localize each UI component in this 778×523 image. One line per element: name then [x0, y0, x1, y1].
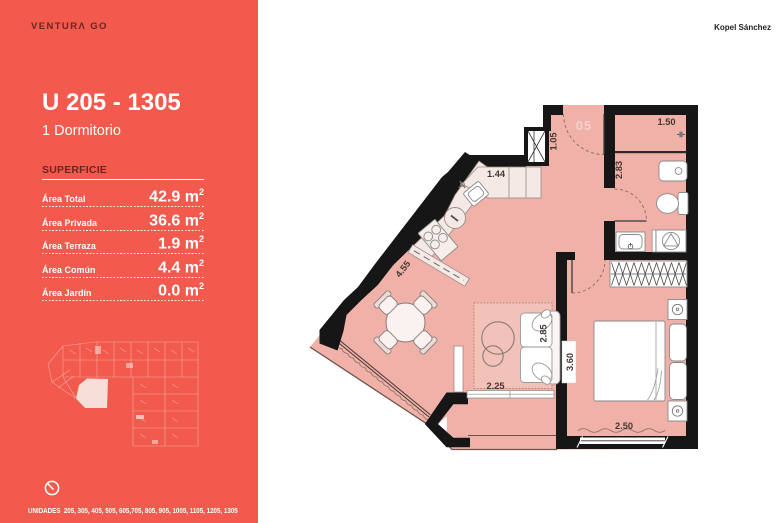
svg-text:1.44: 1.44: [487, 169, 506, 179]
svg-text:1.05: 1.05: [549, 132, 559, 150]
svg-text:3.60: 3.60: [565, 353, 575, 371]
svg-text:2.85: 2.85: [539, 324, 549, 342]
svg-text:1.50: 1.50: [657, 117, 675, 127]
svg-text:05: 05: [576, 118, 592, 133]
svg-text:2.25: 2.25: [486, 381, 504, 391]
svg-text:2.50: 2.50: [615, 421, 633, 431]
svg-text:2.83: 2.83: [614, 161, 624, 179]
